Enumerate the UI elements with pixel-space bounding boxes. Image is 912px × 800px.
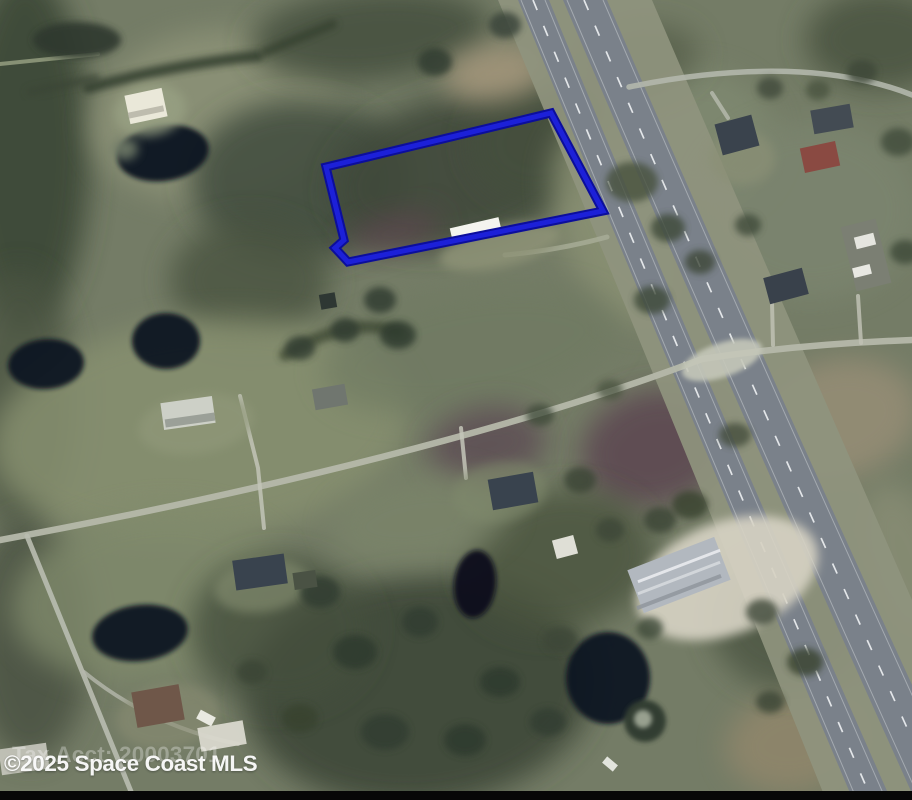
tree-canopy [402,607,438,637]
tree-canopy [756,691,784,713]
tree-canopy [735,214,761,236]
tree-canopy [33,22,121,58]
tree-canopy [644,507,676,533]
tree-canopy [237,660,267,684]
tree-canopy [596,518,624,542]
tree-canopy [719,423,751,447]
tree-canopy [444,724,486,756]
tree-canopy [746,599,778,625]
tree-canopy [526,404,554,426]
building [319,292,337,310]
driveway [772,302,773,345]
ground-pad [112,138,138,160]
tree-canopy [331,318,359,342]
tree-canopy [530,708,566,736]
building [292,570,317,590]
tree-canopy [489,12,521,38]
tree-canopy [634,286,670,314]
tree-canopy [685,250,715,274]
tree-canopy [282,704,318,732]
tree-canopy [847,60,877,84]
tree-canopy [380,321,416,349]
tree-canopy [787,648,823,676]
tree-canopy [543,627,577,653]
tree-canopy [637,617,663,639]
round-tree-center [634,710,652,728]
tree-canopy [364,287,396,313]
pond [132,313,200,369]
tree-canopy [480,667,520,697]
tree-canopy [651,214,685,242]
tree-canopy [361,714,409,750]
tree-canopy [333,635,377,669]
tree-canopy [418,48,452,76]
tree-canopy [564,467,596,493]
tree-canopy [806,80,830,100]
tree-canopy [757,77,783,99]
tree-canopy [606,162,658,202]
tree-canopy [672,491,708,519]
tree-canopy [285,336,315,360]
letterbox-bar [0,791,912,800]
aerial-map [0,0,912,800]
tree-canopy [597,380,623,400]
mls-aerial-listing-photo: Tax Acct: 20003701 ©2025 Space Coast MLS [0,0,912,800]
